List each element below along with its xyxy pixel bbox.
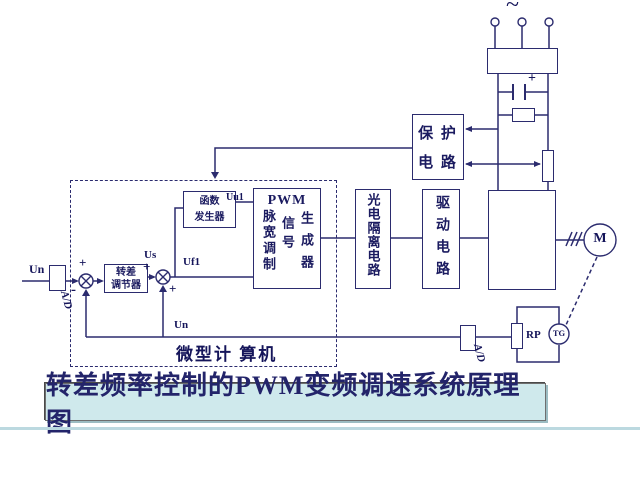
regulator-label-line2: 调节器 [105,279,147,292]
tg-label: TG [551,328,567,338]
motor-label: M [590,231,610,247]
three-phase-slashes-icon [566,232,582,246]
protection-output-wire [215,148,412,177]
title-bar: 转差频率控制的PWM变频调速系统原理图 [45,383,546,421]
bottom-shadow-band [0,427,640,430]
ad-converter-input-box [49,265,66,291]
ac-input-wires [495,26,549,48]
protection-circuit-box: 保 护 电 路 [412,114,464,180]
rp-label: RP [526,329,541,341]
pwm-generator-box: PWM 脉宽调制 信号 生成器 [253,188,321,289]
ac-terminal-icon [545,18,553,26]
arrow-into-protection-1 [465,126,472,132]
pwm-heading: PWM [254,193,320,209]
motor-tg-coupling [566,257,597,325]
protection-label-line1: 保 护 [418,122,458,143]
pwm-col-modulation: 脉宽调制 [259,209,278,277]
pwm-columns: 脉宽调制 信号 生成器 [254,209,320,277]
rectifier-box [487,48,558,74]
shunt-resistor-box [542,150,554,182]
pwm-col-generator: 生成器 [297,211,316,277]
slip-regulator-box: 转差 调节器 [104,264,148,293]
function-label-line2: 发生器 [184,210,235,226]
plus-sign-summer1: + [79,255,86,271]
opto-isolation-box: 光电隔离电路 [355,189,391,289]
inverter-box [488,190,556,290]
microcomputer-label: 微型计 算机 [176,340,277,365]
ac-symbol: ~ [506,0,519,19]
drive-label: 驱动电路 [431,195,451,283]
arrow-protection-to-mcu [211,172,219,179]
opto-label: 光电隔离电路 [364,193,383,277]
uu1-label: Uu1 [226,192,244,203]
ac-terminal-icon [518,18,526,26]
capacitor-plates-icon [513,84,525,100]
brake-resistor-box [512,108,535,122]
ac-terminal-icon [491,18,499,26]
rp-potentiometer-box [511,323,523,349]
un-feedback-label: Un [174,319,188,331]
pwm-col-signal: 信号 [278,216,297,277]
plus-sign-summer2-bottom: + [169,281,176,297]
un-input-label: Un [29,262,44,277]
uf1-label: Uf1 [183,256,200,268]
arrow-into-shunt [534,161,541,167]
regulator-label-line1: 转差 [105,266,147,279]
protection-label-line2: 电 路 [418,151,458,172]
minus-sign-summer1: - [71,282,76,299]
drive-circuit-box: 驱动电路 [422,189,460,289]
capacitor-plus-sign: + [528,71,536,87]
arrow-into-protection-2 [465,161,472,167]
plus-sign-summer2-left: + [143,259,150,275]
